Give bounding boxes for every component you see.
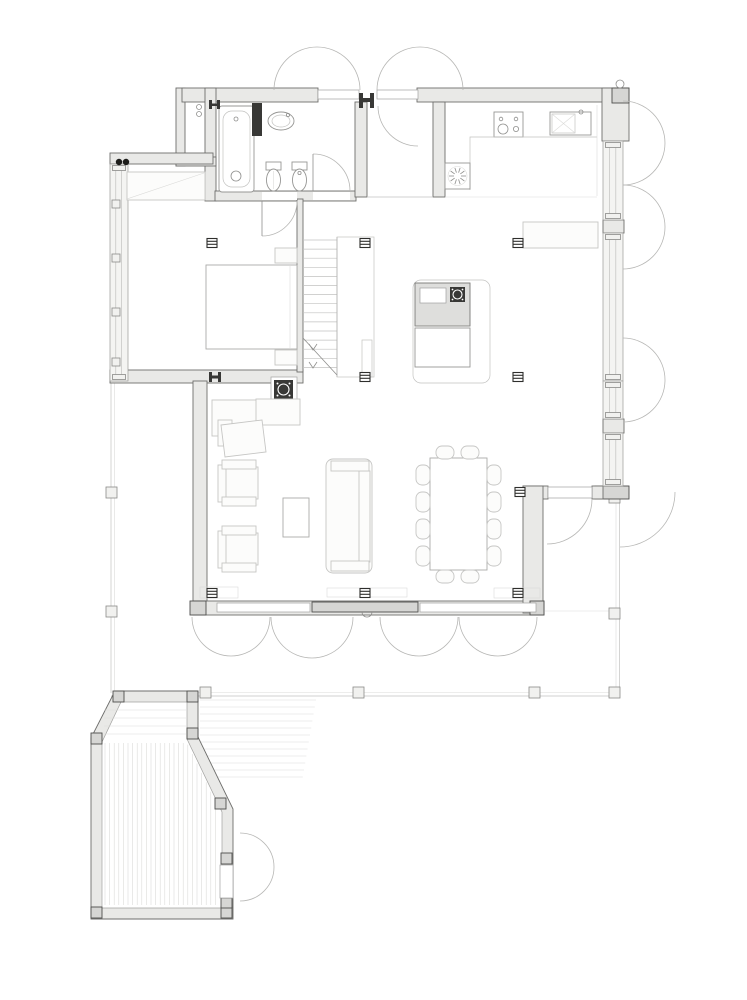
- window-east-1: [603, 141, 623, 220]
- window-east-3: [603, 381, 623, 419]
- wall-east-mullion-2: [603, 419, 624, 433]
- door-opening-entry-right: [377, 90, 418, 99]
- window-bedroom-west: [110, 164, 128, 381]
- wall-sw-corner-post: [190, 601, 206, 615]
- grid-column: [515, 488, 525, 497]
- dining-chair: [487, 465, 501, 485]
- window-mullion-post: [112, 358, 120, 366]
- dining-chair: [436, 446, 454, 459]
- deck-corner-post: [221, 907, 232, 918]
- arc-east-window-3: [623, 338, 665, 422]
- wall-living-west: [193, 381, 207, 613]
- terrace-post: [609, 608, 620, 619]
- window-bedroom-west-glass: [110, 164, 128, 381]
- window-east-3-cap: [606, 413, 621, 418]
- dining-chair: [436, 570, 454, 583]
- dining-chair: [487, 519, 501, 539]
- nightstand: [275, 248, 297, 263]
- deck-corner-post: [187, 691, 198, 702]
- sideboard: [256, 399, 300, 425]
- window-east-4-cap: [606, 435, 621, 440]
- window-east-1-cap: [606, 143, 621, 148]
- grid-column-box: [207, 589, 217, 598]
- wall-bedroom-east: [297, 199, 303, 372]
- dining-chair: [487, 546, 501, 566]
- window-east-2-cap: [606, 375, 621, 380]
- floor-plan-page: [0, 0, 747, 1000]
- stair-break-line: [303, 338, 337, 375]
- bidet-bowl: [293, 169, 307, 191]
- stove-bolt: [289, 383, 291, 385]
- window-east-1-glass: [603, 141, 623, 220]
- sofa-arm: [331, 561, 369, 571]
- arc-south-door-2: [271, 617, 353, 658]
- armchair-seat: [226, 533, 258, 565]
- layer-deck: [91, 691, 274, 919]
- layer-fixtures: [197, 103, 598, 401]
- grid-column-box: [207, 239, 217, 248]
- wall-top-right: [417, 88, 629, 102]
- window-mullion-post: [112, 200, 120, 208]
- steel-column-web: [212, 376, 218, 379]
- kitchen-sink: [550, 112, 591, 135]
- grid-column: [207, 589, 217, 598]
- bed: [206, 265, 297, 349]
- window-east-2: [603, 233, 623, 381]
- wall-porch-north-b: [592, 486, 603, 499]
- cabinet-ne: [523, 222, 598, 248]
- arc-east-window-2: [623, 185, 665, 269]
- dining-chair: [487, 492, 501, 512]
- island-inset: [420, 288, 446, 303]
- arc-bedroom-door: [262, 201, 297, 236]
- window-south-left: [217, 603, 310, 612]
- kitchen-counter-edge: [470, 137, 597, 190]
- wall-corridor-west: [355, 102, 367, 197]
- arc-corridor-door: [378, 106, 418, 146]
- door-opening-porch: [548, 487, 592, 498]
- window-east-4-cap: [606, 480, 621, 485]
- grid-column: [513, 589, 523, 598]
- kitchen-appliance: [445, 163, 470, 189]
- grid-column: [513, 239, 523, 248]
- sofa-back: [359, 471, 370, 562]
- window-mullion-post: [112, 308, 120, 316]
- deck-door-opening: [220, 865, 233, 898]
- closet-hook: [197, 112, 202, 117]
- corner-marker-circle: [616, 80, 624, 88]
- armchair-arm: [222, 526, 256, 535]
- survey-dot: [116, 159, 122, 165]
- terrace-post: [106, 487, 117, 498]
- arc-south-door-4: [459, 617, 537, 656]
- deck-corner-post: [215, 798, 226, 809]
- grid-column: [513, 373, 523, 382]
- island-hob-bolt: [462, 289, 464, 291]
- stove-bolt: [277, 395, 279, 397]
- arc-south-door-3: [380, 617, 458, 656]
- door-opening-bath: [313, 192, 350, 200]
- window-east-2-cap: [606, 235, 621, 240]
- sofa-arm: [331, 461, 369, 471]
- grid-column: [360, 239, 370, 248]
- wall-top-left: [182, 88, 318, 102]
- dining-table: [430, 458, 487, 570]
- steel-column-flange: [209, 372, 212, 382]
- terrace-post: [106, 606, 117, 617]
- window-east-2-glass: [603, 233, 623, 381]
- door-opening-entry-left: [318, 90, 359, 99]
- window-east-1-cap: [606, 214, 621, 219]
- deck-corner-post: [221, 898, 232, 908]
- deck-corner-post: [91, 733, 102, 744]
- window-east-4-glass: [603, 433, 623, 486]
- grid-column: [360, 589, 370, 598]
- closet-hook: [197, 105, 202, 110]
- steel-column-flange: [217, 100, 220, 109]
- armchair-arm: [222, 497, 256, 506]
- stove-bolt: [277, 383, 279, 385]
- stove-bolt: [289, 395, 291, 397]
- door-opening-bedroom: [262, 192, 297, 200]
- sideboard: [221, 420, 266, 457]
- window-east-3-cap: [606, 383, 621, 388]
- armchair-seat: [226, 467, 258, 499]
- island-hob-bolt: [452, 299, 454, 301]
- arc-entry-door-left: [274, 47, 360, 90]
- terrace-post: [200, 687, 211, 698]
- steel-column-web: [212, 104, 217, 107]
- terrace-post: [609, 687, 620, 698]
- dining-chair: [461, 446, 479, 459]
- coffee-table: [283, 498, 309, 537]
- steel-column-flange: [218, 372, 221, 382]
- cooktop: [494, 112, 523, 137]
- sliding-door-south: [312, 602, 418, 612]
- grid-column-box: [360, 589, 370, 598]
- grid-column-box: [515, 488, 525, 497]
- grid-column: [360, 373, 370, 382]
- window-bedroom-west-cap: [113, 375, 126, 380]
- terrace-post: [529, 687, 540, 698]
- armchair-arm: [222, 563, 256, 572]
- deck-corner-post: [221, 853, 232, 864]
- layer-ground: [200, 700, 316, 777]
- grid-column-box: [513, 373, 523, 382]
- arc-south-door-1: [192, 617, 270, 656]
- stair-rail: [362, 340, 372, 377]
- grid-column-box: [513, 589, 523, 598]
- dining-chair: [416, 519, 430, 539]
- wall-kitchen-west: [433, 102, 445, 197]
- layer-stairs: [303, 237, 374, 377]
- bath-partition: [252, 103, 262, 136]
- deck-floor: [102, 702, 222, 908]
- window-east-4: [603, 433, 623, 486]
- dining-chair: [461, 570, 479, 583]
- grid-column-box: [513, 239, 523, 248]
- steel-column-web: [362, 98, 371, 102]
- nightstand: [275, 350, 297, 365]
- armchair-arm: [222, 460, 256, 469]
- grid-column: [207, 239, 217, 248]
- steel-column-flange: [209, 100, 212, 109]
- deck-corner-post: [91, 907, 102, 918]
- window-south-right: [420, 603, 536, 612]
- bathtub: [219, 106, 254, 192]
- grid-column-box: [360, 239, 370, 248]
- deck-corner-post: [113, 691, 124, 702]
- grid-column-box: [360, 373, 370, 382]
- island-hob-bolt: [462, 299, 464, 301]
- arc-porch-door: [547, 499, 592, 544]
- floor-plan-drawing: [0, 0, 747, 1000]
- arc-bath-door: [313, 154, 350, 191]
- terrace-post: [353, 687, 364, 698]
- dining-chair: [416, 492, 430, 512]
- wall-east-mullion-1: [603, 220, 624, 233]
- dining-chair: [416, 546, 430, 566]
- arc-se-door: [620, 492, 675, 547]
- window-bedroom-west-cap: [113, 166, 126, 171]
- window-mullion-post: [112, 254, 120, 262]
- deck-corner-post: [187, 728, 198, 739]
- arc-entry-door-right: [377, 47, 463, 90]
- deck-door-arc: [240, 833, 274, 901]
- stair-well: [337, 237, 374, 377]
- dining-chair: [416, 465, 430, 485]
- island-base: [415, 328, 470, 367]
- survey-dot: [123, 159, 129, 165]
- island-hob-bolt: [452, 289, 454, 291]
